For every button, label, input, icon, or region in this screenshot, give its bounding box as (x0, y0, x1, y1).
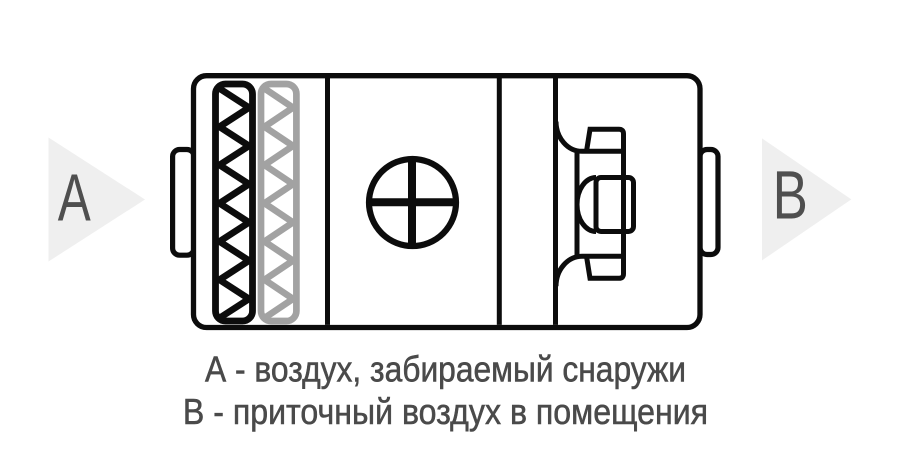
svg-text:В - приточный воздух в помещен: В - приточный воздух в помещения (183, 392, 708, 432)
svg-text:А: А (58, 162, 91, 236)
svg-text:В: В (773, 156, 808, 233)
svg-text:А - воздух, забираемый снаружи: А - воздух, забираемый снаружи (205, 350, 686, 390)
